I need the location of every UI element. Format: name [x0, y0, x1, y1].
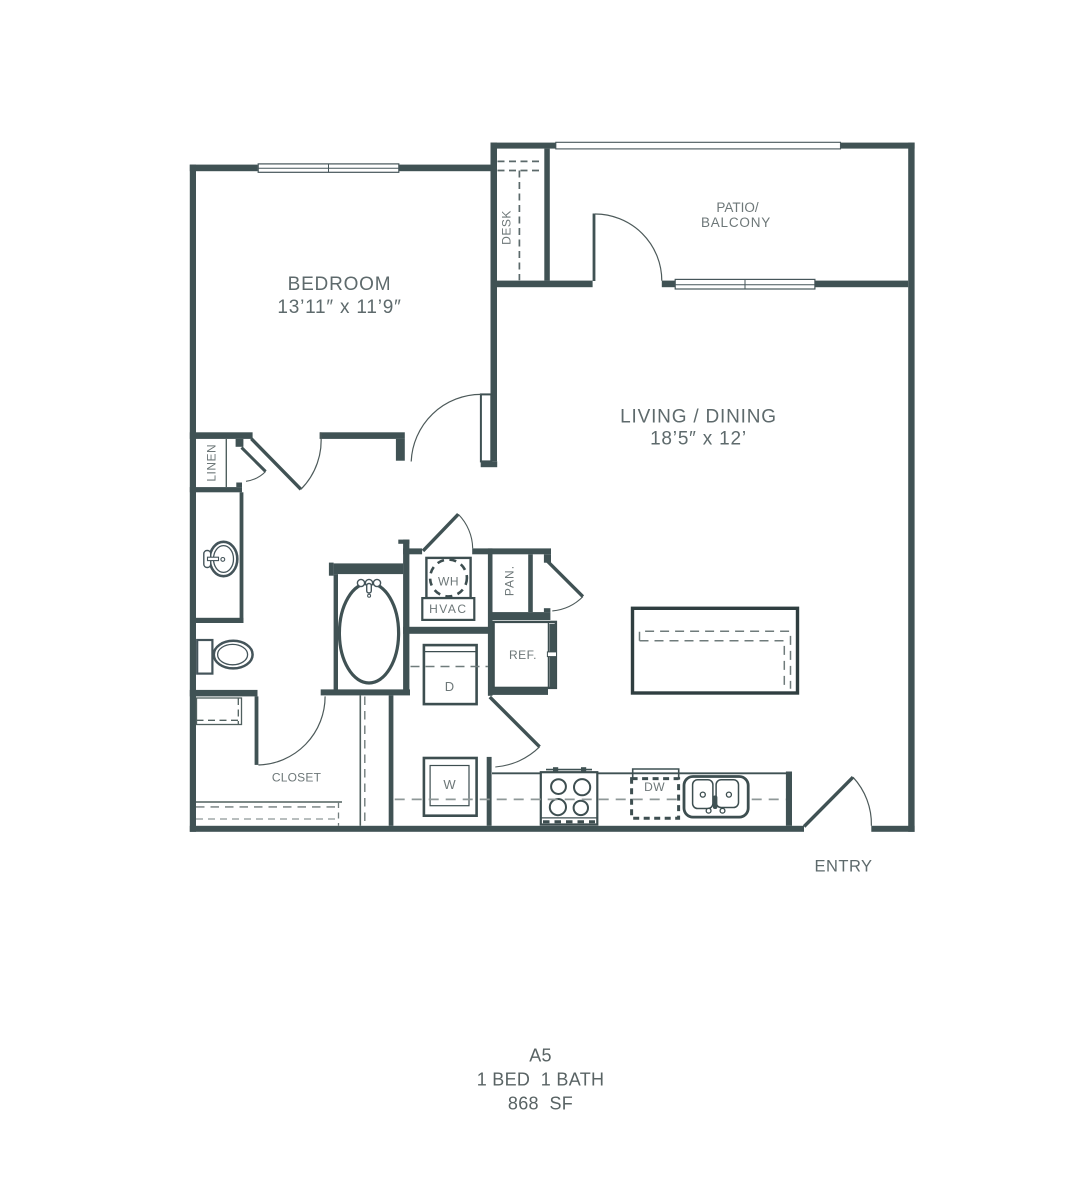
svg-text:BEDROOM: BEDROOM — [288, 274, 392, 295]
svg-text:D: D — [445, 679, 454, 694]
svg-text:CLOSET: CLOSET — [272, 770, 322, 784]
svg-text:DW: DW — [644, 780, 665, 794]
svg-text:1 BED 1 BATH: 1 BED 1 BATH — [477, 1070, 605, 1090]
svg-text:DESK: DESK — [500, 210, 514, 245]
svg-text:REF.: REF. — [509, 648, 537, 662]
svg-text:BALCONY: BALCONY — [701, 215, 771, 230]
svg-text:13’11″ x 11’9″: 13’11″ x 11’9″ — [277, 297, 401, 318]
svg-text:LIVING / DINING: LIVING / DINING — [620, 407, 777, 428]
svg-text:18’5″ x 12’: 18’5″ x 12’ — [650, 428, 747, 449]
svg-text:868 SF: 868 SF — [508, 1094, 573, 1114]
svg-text:LINEN: LINEN — [204, 444, 218, 482]
svg-text:WH: WH — [438, 575, 459, 589]
svg-text:PAN.: PAN. — [502, 565, 516, 596]
svg-text:PATIO/: PATIO/ — [716, 200, 759, 215]
svg-text:A5: A5 — [529, 1045, 552, 1065]
svg-text:ENTRY: ENTRY — [814, 858, 872, 876]
svg-text:W: W — [443, 777, 456, 792]
svg-text:HVAC: HVAC — [429, 602, 467, 616]
